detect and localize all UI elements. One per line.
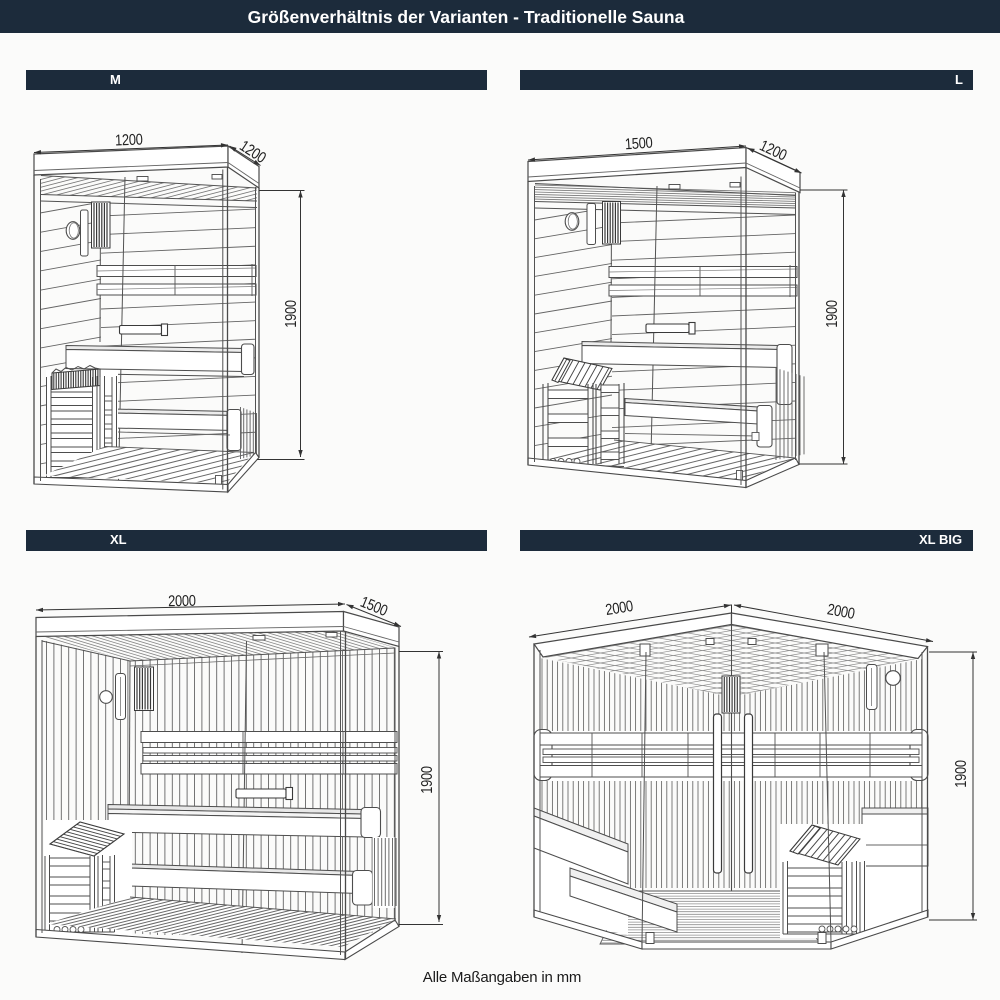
svg-text:1200: 1200 [115, 131, 143, 150]
svg-text:2000: 2000 [826, 601, 857, 623]
svg-text:1500: 1500 [624, 135, 653, 154]
svg-text:1900: 1900 [824, 300, 841, 328]
svg-text:2000: 2000 [604, 598, 634, 620]
svg-text:2000: 2000 [168, 593, 196, 611]
svg-text:1900: 1900 [419, 766, 436, 794]
svg-text:1900: 1900 [953, 760, 970, 788]
svg-text:1900: 1900 [283, 300, 300, 328]
